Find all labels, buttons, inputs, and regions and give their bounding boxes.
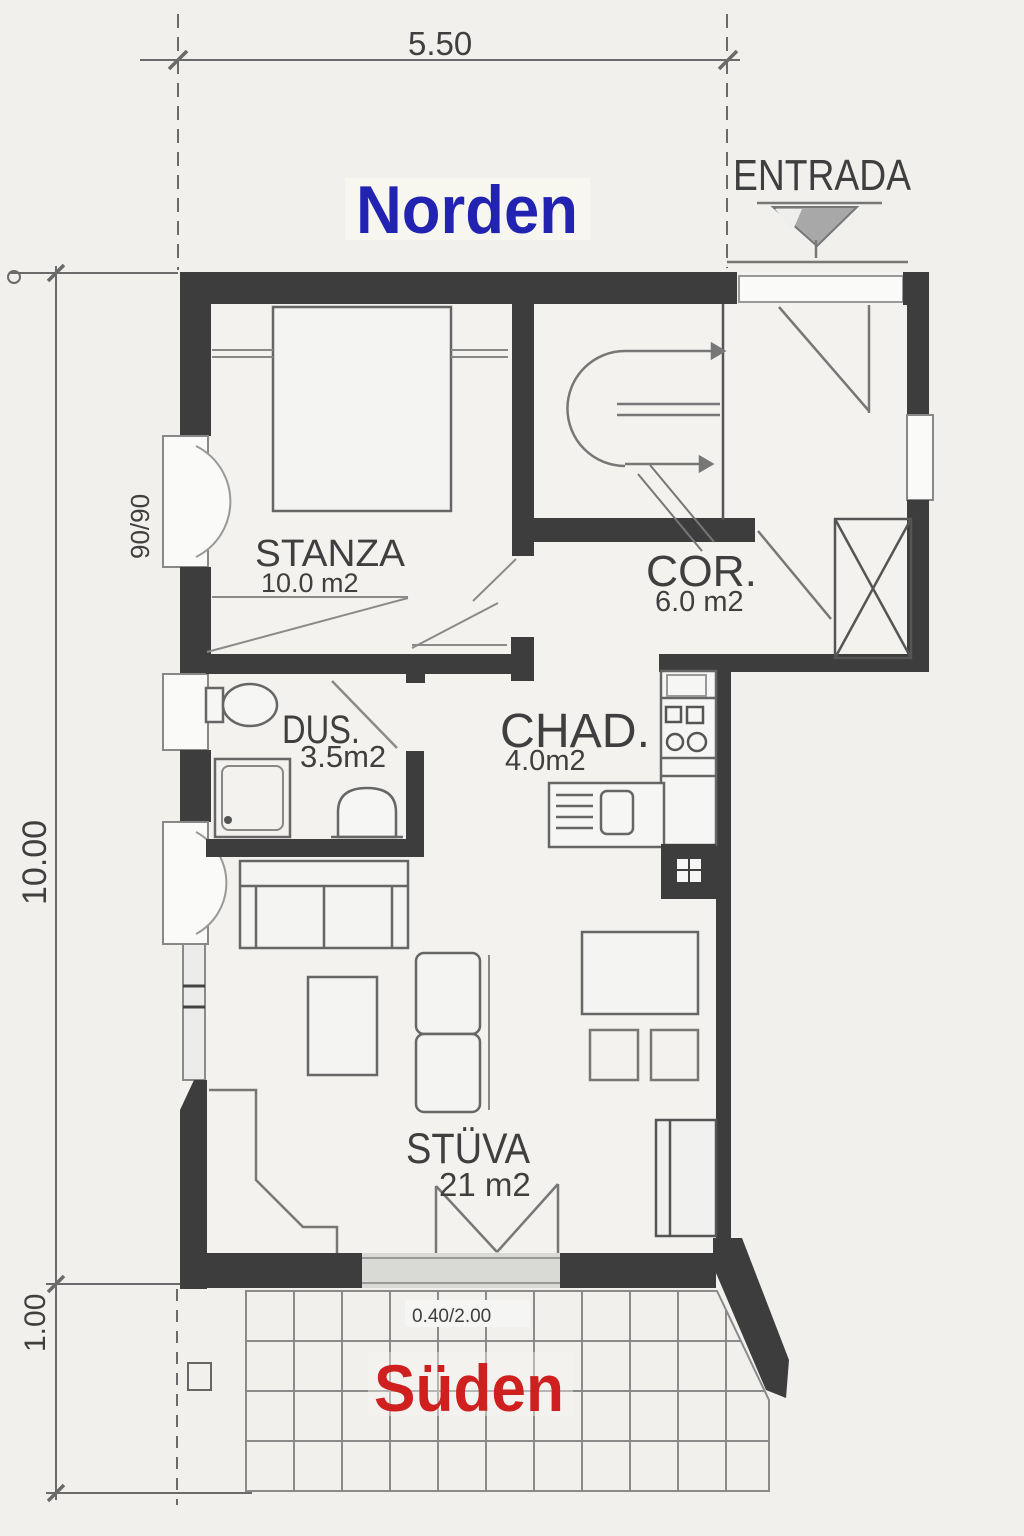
svg-text:21 m2: 21 m2	[439, 1166, 531, 1203]
svg-text:1.00: 1.00	[19, 1294, 52, 1352]
svg-text:4.0m2: 4.0m2	[505, 745, 586, 777]
svg-text:0.40/2.00: 0.40/2.00	[412, 1306, 491, 1327]
svg-text:ENTRADA: ENTRADA	[733, 151, 912, 200]
svg-text:Süden: Süden	[374, 1351, 564, 1425]
svg-text:10.0 m2: 10.0 m2	[261, 568, 359, 598]
svg-text:5.50: 5.50	[408, 25, 472, 62]
svg-text:90/90: 90/90	[125, 494, 155, 559]
svg-text:Norden: Norden	[356, 172, 578, 248]
svg-text:10.00: 10.00	[16, 820, 54, 905]
svg-text:6.0 m2: 6.0 m2	[655, 586, 744, 618]
svg-text:3.5m2: 3.5m2	[300, 739, 386, 774]
